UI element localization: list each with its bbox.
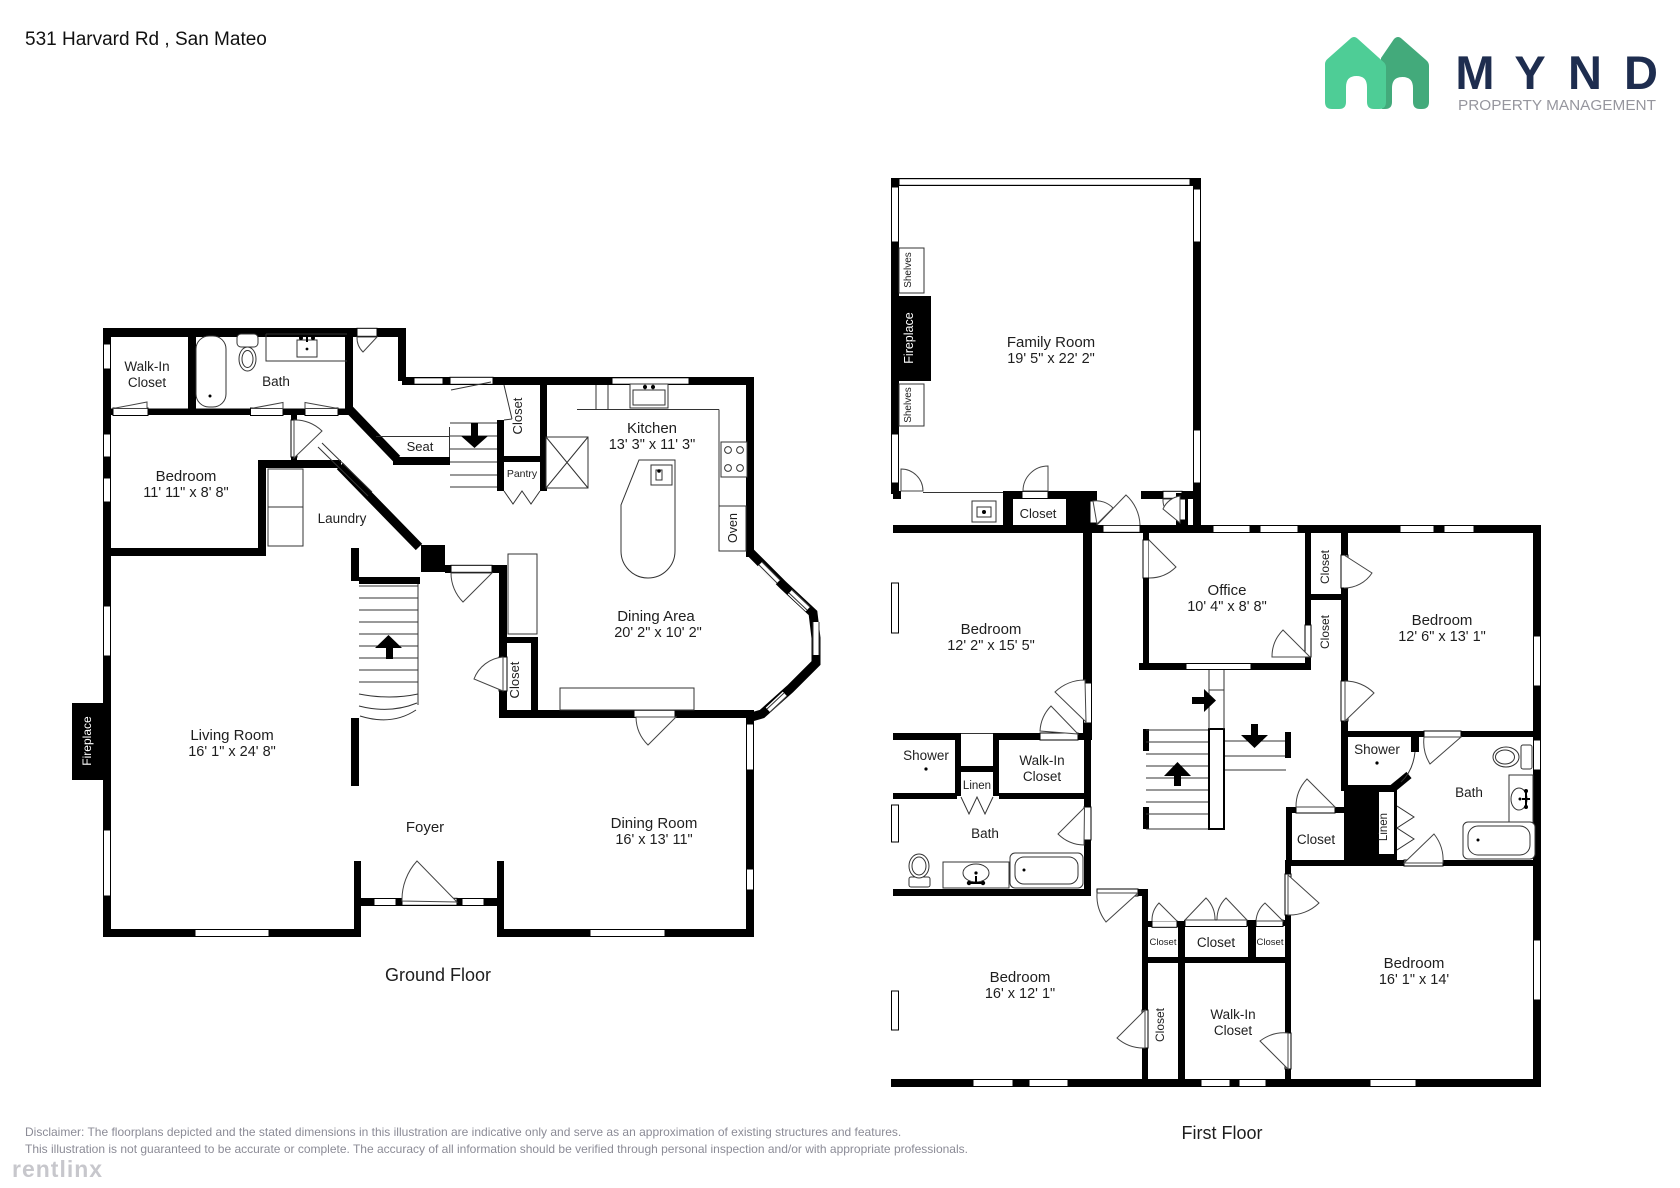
svg-text:D: D: [1624, 46, 1658, 99]
svg-text:Laundry: Laundry: [318, 511, 367, 526]
svg-text:Shower: Shower: [903, 748, 949, 763]
svg-text:Shower: Shower: [1354, 742, 1400, 757]
svg-text:Family Room: Family Room: [1007, 334, 1095, 351]
svg-text:16' x 13' 11": 16' x 13' 11": [615, 832, 692, 848]
svg-text:Pantry: Pantry: [507, 468, 538, 480]
svg-text:Bedroom: Bedroom: [156, 468, 217, 485]
svg-text:Closet: Closet: [128, 375, 167, 390]
svg-text:Bedroom: Bedroom: [1412, 612, 1473, 629]
svg-text:First Floor: First Floor: [1182, 1123, 1263, 1143]
svg-text:Closet: Closet: [510, 397, 525, 434]
svg-text:PROPERTY MANAGEMENT: PROPERTY MANAGEMENT: [1458, 97, 1656, 114]
svg-text:Shelves: Shelves: [903, 252, 914, 288]
svg-text:Walk-In: Walk-In: [124, 359, 169, 374]
svg-text:12' 2" x 15' 5": 12' 2" x 15' 5": [947, 638, 1035, 654]
svg-text:rentlinx: rentlinx: [12, 1156, 103, 1182]
svg-text:Walk-In: Walk-In: [1019, 753, 1064, 768]
svg-text:Bedroom: Bedroom: [961, 621, 1022, 638]
svg-text:Fireplace: Fireplace: [902, 312, 916, 363]
svg-text:Walk-In: Walk-In: [1210, 1007, 1255, 1022]
svg-text:Bath: Bath: [971, 826, 999, 841]
svg-text:Closet: Closet: [1197, 935, 1236, 950]
svg-text:Bedroom: Bedroom: [990, 969, 1051, 986]
svg-text:Fireplace: Fireplace: [80, 716, 94, 766]
svg-text:Shelves: Shelves: [903, 387, 914, 423]
svg-text:Linen: Linen: [1378, 813, 1390, 841]
svg-text:19' 5" x 22' 2": 19' 5" x 22' 2": [1007, 351, 1095, 367]
svg-text:Closet: Closet: [1318, 549, 1332, 584]
svg-text:16' x 12' 1": 16' x 12' 1": [985, 986, 1055, 1002]
svg-text:16' 1" x 14': 16' 1" x 14': [1379, 972, 1450, 988]
svg-text:11' 11" x 8' 8": 11' 11" x 8' 8": [143, 485, 228, 501]
svg-text:20' 2" x 10' 2": 20' 2" x 10' 2": [614, 625, 702, 641]
svg-text:Office: Office: [1208, 582, 1247, 599]
svg-text:Closet: Closet: [1318, 614, 1332, 649]
svg-text:M: M: [1455, 46, 1494, 99]
svg-text:N: N: [1568, 46, 1602, 99]
svg-text:Bedroom: Bedroom: [1384, 955, 1445, 972]
svg-text:Closet: Closet: [507, 661, 522, 698]
svg-text:Y: Y: [1514, 46, 1545, 99]
svg-text:531 Harvard Rd , San Mateo: 531 Harvard Rd , San Mateo: [25, 29, 267, 50]
svg-text:10' 4" x 8' 8": 10' 4" x 8' 8": [1187, 599, 1267, 615]
svg-text:Foyer: Foyer: [406, 819, 444, 836]
svg-text:Seat: Seat: [407, 439, 434, 454]
svg-text:13' 3" x 11' 3": 13' 3" x 11' 3": [609, 437, 696, 453]
svg-text:Disclaimer: The floorplans dep: Disclaimer: The floorplans depicted and …: [25, 1125, 901, 1139]
svg-text:Closet: Closet: [1153, 1007, 1167, 1042]
svg-text:Dining Room: Dining Room: [611, 815, 698, 832]
svg-text:Bath: Bath: [262, 374, 290, 389]
svg-text:Oven: Oven: [726, 513, 740, 543]
svg-text:Ground Floor: Ground Floor: [385, 965, 491, 985]
svg-text:12' 6" x 13' 1": 12' 6" x 13' 1": [1398, 629, 1486, 645]
svg-text:Living Room: Living Room: [190, 727, 273, 744]
svg-text:Closet: Closet: [1297, 832, 1336, 847]
svg-text:Linen: Linen: [963, 780, 991, 792]
svg-text:Closet: Closet: [1023, 769, 1062, 784]
svg-text:Dining Area: Dining Area: [617, 608, 695, 625]
svg-text:Closet: Closet: [1214, 1023, 1253, 1038]
svg-text:Closet: Closet: [1020, 506, 1057, 521]
svg-text:Closet: Closet: [1257, 937, 1284, 948]
svg-text:Bath: Bath: [1455, 785, 1483, 800]
svg-text:16' 1" x 24' 8": 16' 1" x 24' 8": [188, 744, 276, 760]
svg-text:Closet: Closet: [1150, 937, 1177, 948]
svg-text:This illustration is not guara: This illustration is not guaranteed to b…: [25, 1142, 968, 1156]
svg-text:Kitchen: Kitchen: [627, 420, 677, 437]
